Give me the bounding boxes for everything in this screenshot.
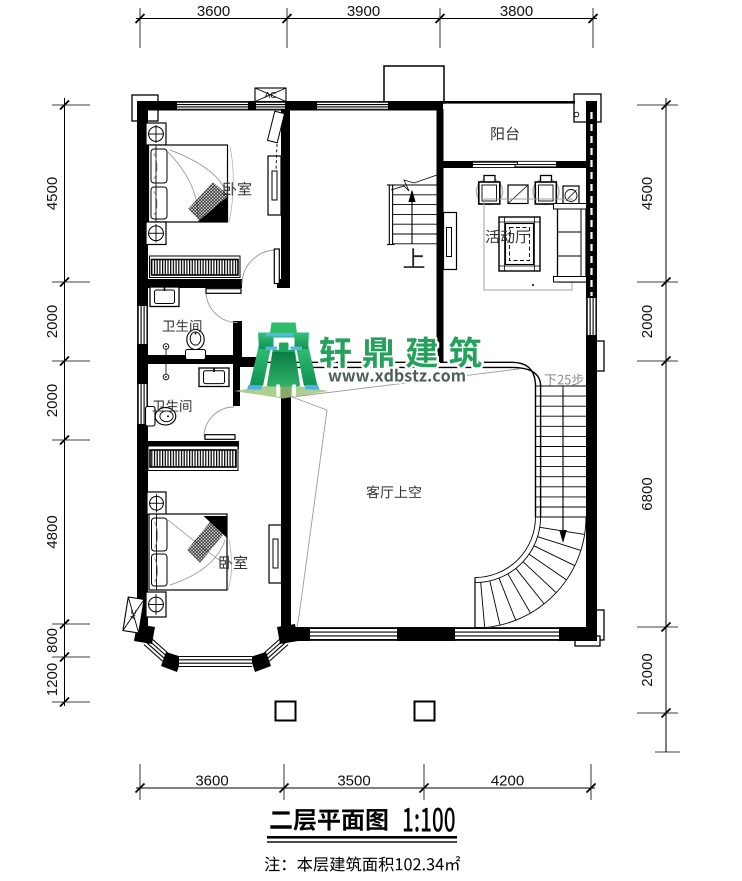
svg-text:4500: 4500 [44, 177, 61, 210]
svg-text:3600: 3600 [195, 773, 228, 790]
svg-text:2000: 2000 [639, 653, 656, 686]
svg-text:3600: 3600 [197, 3, 230, 20]
svg-text:3900: 3900 [347, 3, 380, 20]
svg-text:2000: 2000 [639, 305, 656, 338]
svg-text:3500: 3500 [337, 773, 370, 790]
svg-text:2000: 2000 [44, 305, 61, 338]
svg-text:6800: 6800 [639, 477, 656, 510]
svg-text:800: 800 [44, 628, 61, 653]
svg-text:4500: 4500 [639, 177, 656, 210]
svg-text:1200: 1200 [44, 663, 61, 696]
svg-text:3800: 3800 [500, 3, 533, 20]
svg-text:AC: AC [265, 90, 277, 100]
svg-text:4800: 4800 [44, 515, 61, 548]
svg-text:2000: 2000 [44, 384, 61, 417]
svg-text:4200: 4200 [491, 773, 524, 790]
